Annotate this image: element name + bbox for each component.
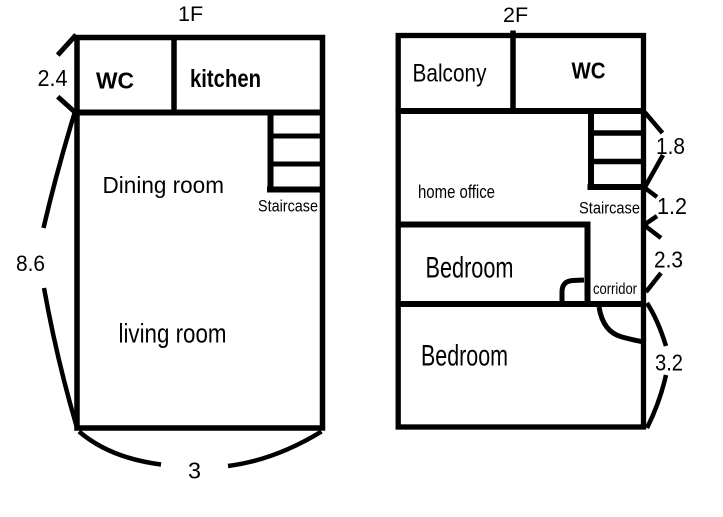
svg-text:corridor: corridor — [593, 281, 638, 298]
svg-text:Balcony: Balcony — [413, 59, 487, 87]
svg-text:3: 3 — [188, 458, 201, 484]
svg-text:1.8: 1.8 — [656, 133, 685, 159]
svg-text:3.2: 3.2 — [655, 350, 683, 376]
svg-text:1.2: 1.2 — [657, 193, 687, 219]
svg-text:Staircase: Staircase — [579, 200, 640, 218]
svg-text:2.3: 2.3 — [654, 247, 683, 273]
svg-text:2.4: 2.4 — [38, 65, 68, 91]
svg-text:Staircase: Staircase — [258, 198, 318, 216]
svg-text:2F: 2F — [503, 3, 528, 27]
svg-text:WC: WC — [96, 68, 134, 94]
svg-text:living room: living room — [119, 319, 227, 349]
svg-text:8.6: 8.6 — [16, 251, 45, 276]
svg-text:home office: home office — [418, 182, 495, 202]
svg-text:1F: 1F — [178, 2, 203, 26]
svg-text:WC: WC — [572, 58, 606, 84]
svg-text:kitchen: kitchen — [190, 65, 261, 93]
svg-text:Bedroom: Bedroom — [421, 340, 508, 373]
svg-text:Bedroom: Bedroom — [426, 252, 514, 285]
svg-text:Dining room: Dining room — [103, 172, 225, 198]
